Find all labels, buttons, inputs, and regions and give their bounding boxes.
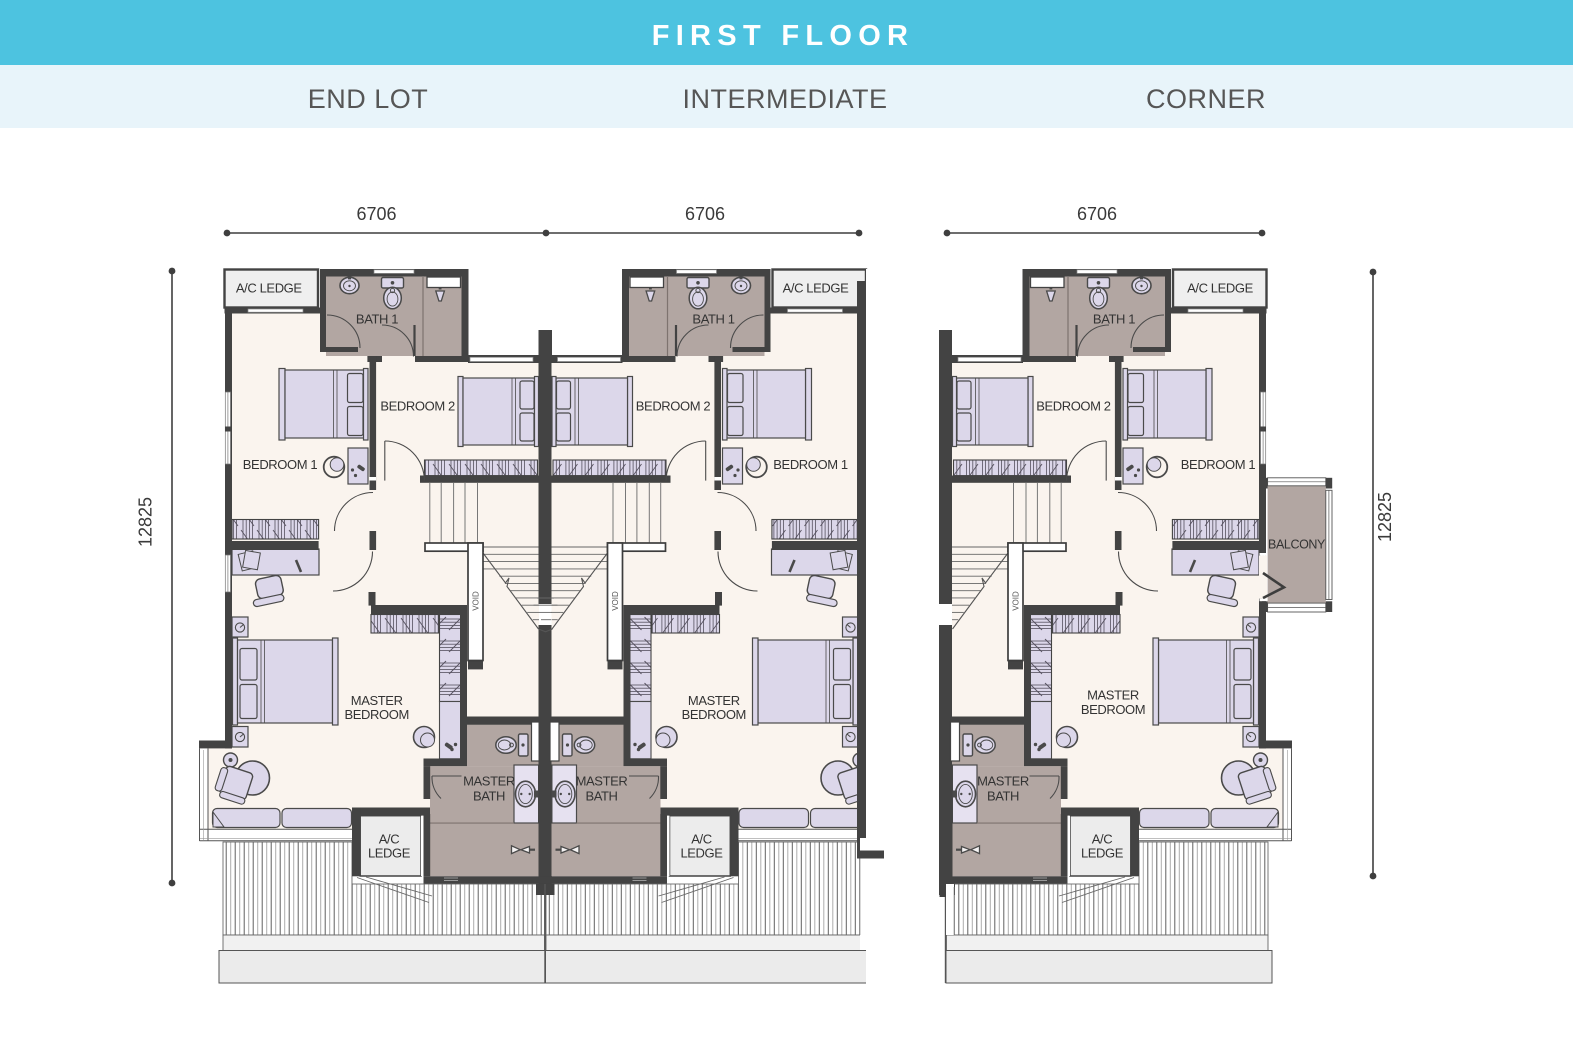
svg-text:FIRST FLOOR: FIRST FLOOR [652,20,915,52]
svg-text:A/C: A/C [691,832,711,847]
svg-text:MASTER: MASTER [977,774,1029,789]
svg-text:BATH 1: BATH 1 [692,312,734,327]
svg-text:BATH 1: BATH 1 [356,312,398,327]
svg-text:A/C LEDGE: A/C LEDGE [236,281,302,296]
svg-text:INTERMEDIATE: INTERMEDIATE [682,84,887,114]
svg-text:A/C: A/C [1092,832,1112,847]
svg-text:MASTER: MASTER [463,774,515,789]
svg-text:LEDGE: LEDGE [368,846,411,861]
svg-text:BATH 1: BATH 1 [1093,312,1135,327]
svg-text:VOID: VOID [471,591,480,611]
svg-text:12825: 12825 [136,497,156,547]
svg-text:MASTER: MASTER [576,774,628,789]
svg-text:BEDROOM: BEDROOM [1081,702,1145,717]
svg-text:BEDROOM 1: BEDROOM 1 [1181,457,1256,472]
svg-text:A/C LEDGE: A/C LEDGE [1187,281,1253,296]
svg-text:BEDROOM 1: BEDROOM 1 [243,457,318,472]
svg-text:BATH: BATH [987,789,1019,804]
svg-text:BEDROOM: BEDROOM [345,707,409,722]
svg-text:BEDROOM 1: BEDROOM 1 [773,457,848,472]
svg-text:BALCONY: BALCONY [1268,537,1326,551]
svg-text:A/C LEDGE: A/C LEDGE [783,281,849,296]
svg-text:BEDROOM 2: BEDROOM 2 [636,399,711,414]
svg-text:BATH: BATH [585,789,617,804]
svg-text:MASTER: MASTER [1087,688,1139,703]
svg-text:6706: 6706 [356,204,396,224]
svg-text:BATH: BATH [473,789,505,804]
svg-text:BEDROOM 2: BEDROOM 2 [380,399,455,414]
svg-text:BEDROOM 2: BEDROOM 2 [1036,399,1111,414]
svg-text:12825: 12825 [1375,492,1395,542]
svg-text:END LOT: END LOT [308,84,429,114]
svg-text:VOID: VOID [611,591,620,611]
svg-text:6706: 6706 [1077,204,1117,224]
svg-text:A/C: A/C [379,832,399,847]
svg-text:LEDGE: LEDGE [1081,846,1124,861]
svg-text:MASTER: MASTER [688,693,740,708]
svg-text:BEDROOM: BEDROOM [682,707,746,722]
svg-text:VOID: VOID [1011,591,1020,611]
svg-text:LEDGE: LEDGE [680,846,723,861]
svg-text:MASTER: MASTER [351,693,403,708]
svg-text:6706: 6706 [685,204,725,224]
svg-text:CORNER: CORNER [1146,84,1266,114]
